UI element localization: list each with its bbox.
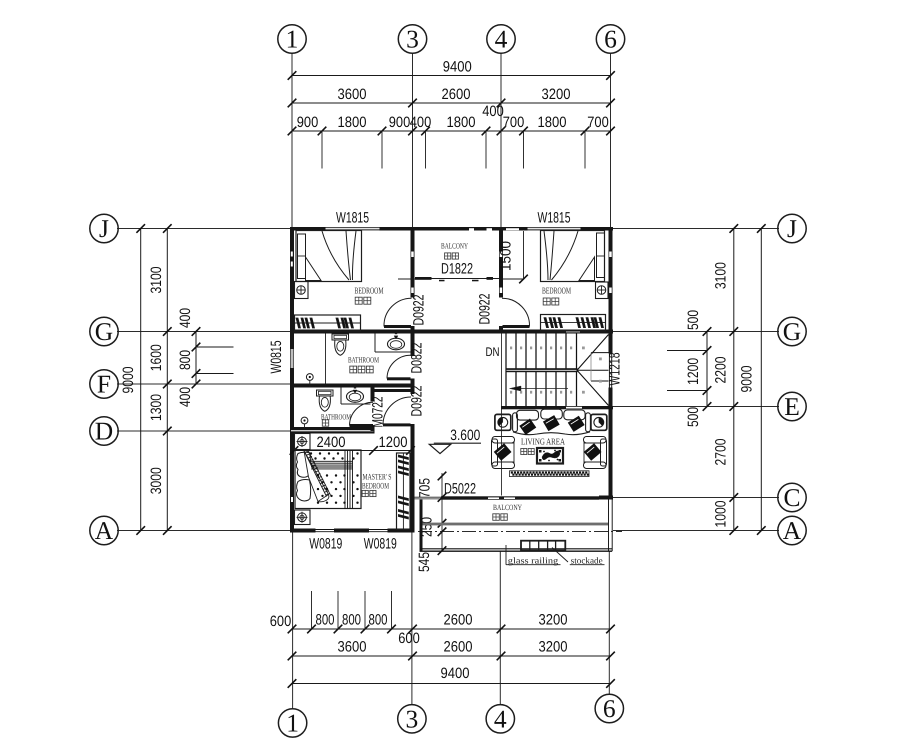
svg-text:1200: 1200 [685,358,702,385]
svg-text:900: 900 [389,114,411,131]
svg-text:3: 3 [406,705,419,734]
svg-text:1800: 1800 [447,114,476,131]
svg-text:3000: 3000 [148,467,165,494]
svg-text:DN: DN [486,345,500,359]
svg-text:400: 400 [410,114,432,131]
svg-text:D0922: D0922 [477,294,494,325]
svg-text:400: 400 [482,103,504,120]
svg-text:D0922: D0922 [411,295,428,326]
svg-text:1600: 1600 [148,344,165,371]
svg-text:1300: 1300 [148,394,165,421]
svg-text:BALCONY: BALCONY [441,242,468,251]
svg-text:500: 500 [685,310,702,330]
svg-text:6: 6 [603,694,616,723]
svg-text:BALCONY: BALCONY [493,503,522,512]
svg-text:D0822: D0822 [409,343,426,374]
svg-text:F: F [97,370,111,399]
svg-text:BEDROOM: BEDROOM [355,286,384,296]
svg-text:3100: 3100 [148,267,165,294]
svg-text:800: 800 [369,612,388,629]
svg-text:E: E [784,392,800,421]
svg-text:1200: 1200 [379,434,408,451]
svg-text:A: A [783,516,802,545]
svg-text:3200: 3200 [539,612,568,629]
svg-text:3: 3 [406,25,419,54]
svg-text:1000: 1000 [713,501,730,528]
svg-text:800: 800 [342,612,361,629]
svg-text:900: 900 [297,114,319,131]
svg-text:2600: 2600 [444,639,473,656]
svg-text:9000: 9000 [120,367,137,394]
svg-text:W1815: W1815 [336,210,369,227]
svg-text:500: 500 [685,407,702,427]
svg-text:C: C [783,483,800,512]
svg-text:800: 800 [316,612,335,629]
svg-text:3600: 3600 [338,86,367,103]
svg-text:LIVING AREA: LIVING AREA [521,436,565,446]
svg-text:400: 400 [177,387,194,407]
svg-text:M0722: M0722 [370,397,387,428]
svg-text:W1815: W1815 [538,210,571,227]
svg-text:800: 800 [177,350,194,370]
svg-text:D1822: D1822 [441,261,473,278]
svg-text:W0819: W0819 [364,536,397,553]
svg-text:D5022: D5022 [444,481,476,498]
svg-text:3100: 3100 [713,262,730,289]
svg-text:D0922: D0922 [409,386,426,417]
svg-text:9400: 9400 [441,665,470,682]
svg-text:J: J [787,214,797,243]
svg-text:W1218: W1218 [607,353,624,386]
svg-text:BEDROOM: BEDROOM [362,481,389,491]
svg-text:9400: 9400 [443,59,472,76]
svg-text:3200: 3200 [539,639,568,656]
svg-text:2700: 2700 [713,439,730,466]
svg-text:A: A [95,516,114,545]
svg-text:3.600: 3.600 [450,427,480,444]
svg-text:G: G [783,317,801,346]
svg-text:1: 1 [286,25,299,54]
svg-text:W0819: W0819 [309,536,342,553]
svg-text:700: 700 [503,114,525,131]
svg-text:2600: 2600 [442,86,471,103]
svg-text:W0815: W0815 [268,341,285,374]
svg-text:6: 6 [604,25,617,54]
svg-text:G: G [95,317,113,346]
svg-text:D: D [95,417,113,446]
svg-text:600: 600 [270,613,292,630]
svg-text:2600: 2600 [444,612,473,629]
svg-text:4: 4 [494,705,507,734]
svg-text:545: 545 [416,552,433,572]
svg-text:600: 600 [398,630,420,647]
svg-text:1800: 1800 [538,114,567,131]
svg-text:1800: 1800 [338,114,367,131]
svg-text:3600: 3600 [338,639,367,656]
svg-text:705: 705 [417,478,434,498]
svg-text:700: 700 [587,114,609,131]
svg-text:2400: 2400 [317,434,346,451]
svg-text:glass railing: glass railing [508,556,559,566]
svg-text:stockade: stockade [571,556,603,566]
svg-text:400: 400 [177,308,194,328]
svg-text:BEDROOM: BEDROOM [542,286,571,296]
svg-text:1500: 1500 [498,241,515,271]
svg-text:1: 1 [286,709,299,738]
svg-text:4: 4 [495,25,508,54]
svg-text:2200: 2200 [713,357,730,384]
svg-text:3200: 3200 [542,86,571,103]
svg-text:J: J [99,214,109,243]
svg-text:BATHROOM: BATHROOM [348,356,379,365]
svg-text:9000: 9000 [739,366,756,393]
